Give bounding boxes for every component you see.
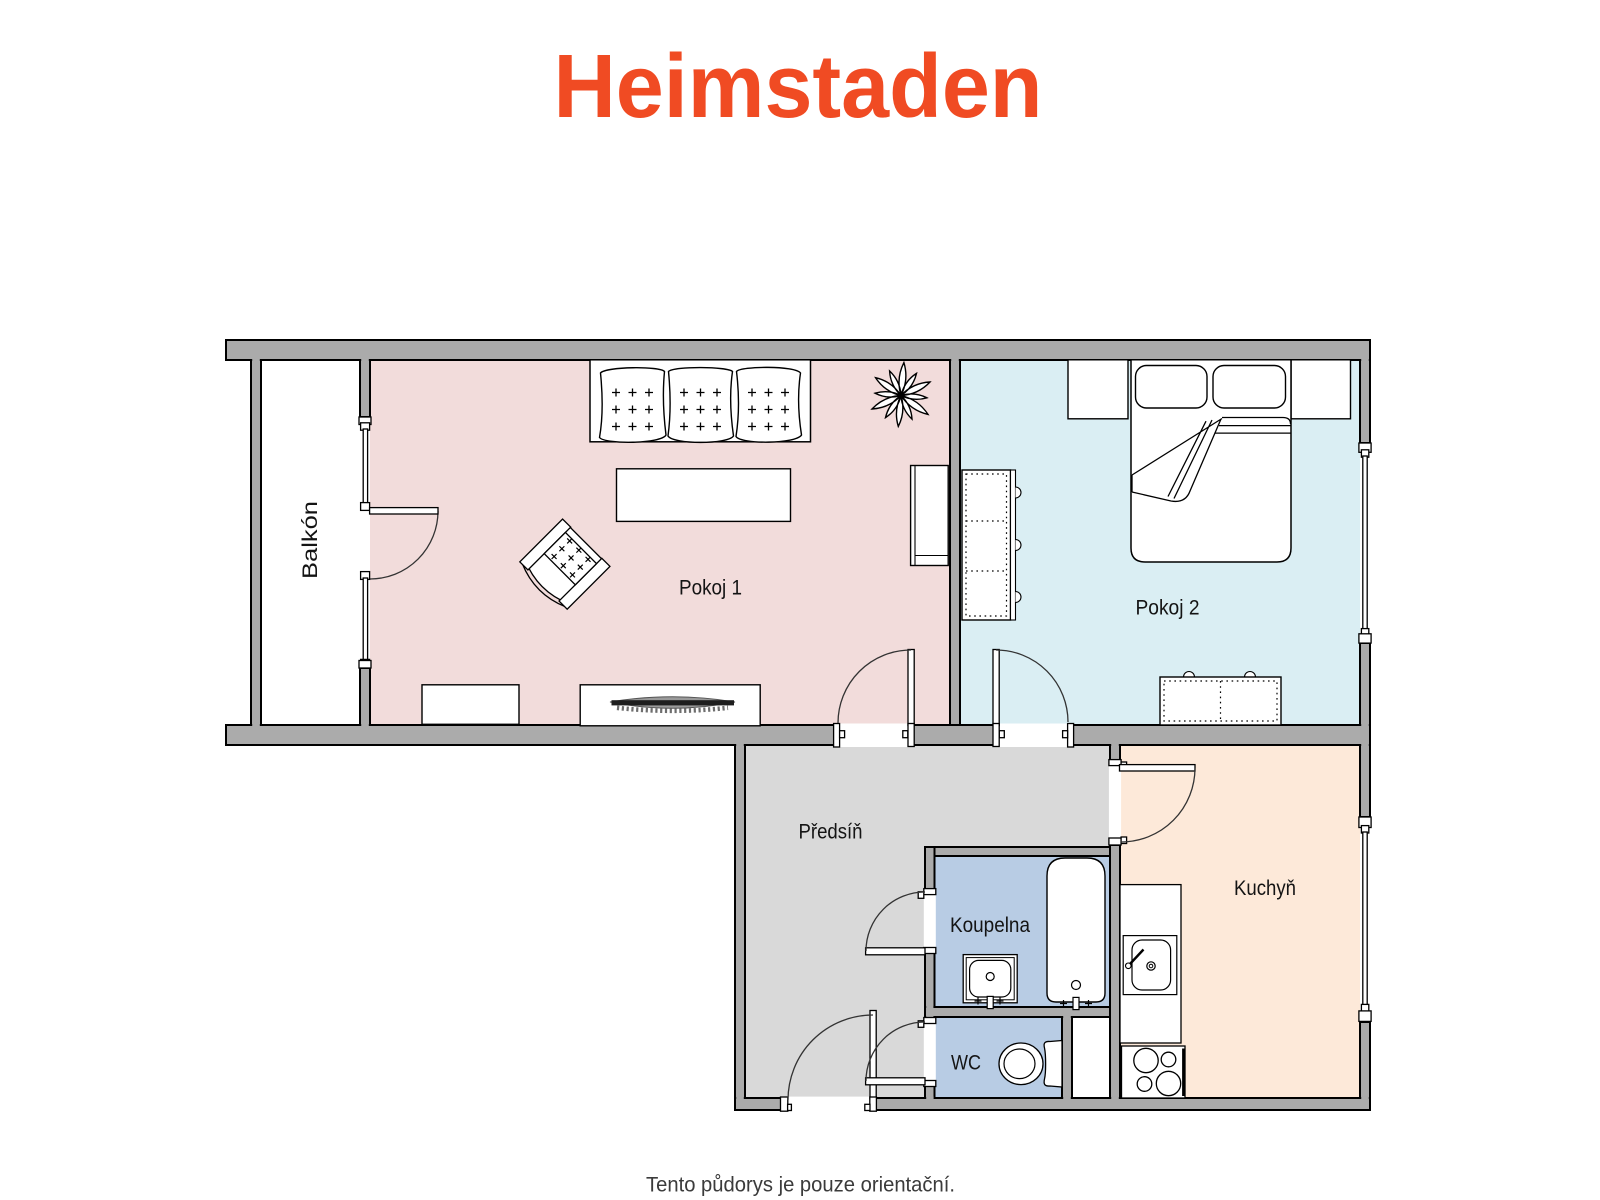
svg-text:Koupelna: Koupelna	[950, 913, 1030, 937]
svg-text:Kuchyň: Kuchyň	[1234, 876, 1296, 900]
svg-text:Pokoj 2: Pokoj 2	[1136, 596, 1200, 620]
svg-text:Pokoj 1: Pokoj 1	[679, 576, 742, 600]
svg-text:WC: WC	[951, 1051, 981, 1075]
svg-text:Heimstaden: Heimstaden	[554, 37, 1043, 137]
svg-text:Předsíň: Předsíň	[799, 820, 863, 844]
svg-text:Tento půdorys je pouze orienta: Tento půdorys je pouze orientační.	[646, 1173, 955, 1197]
svg-text:Balkón: Balkón	[298, 501, 322, 579]
